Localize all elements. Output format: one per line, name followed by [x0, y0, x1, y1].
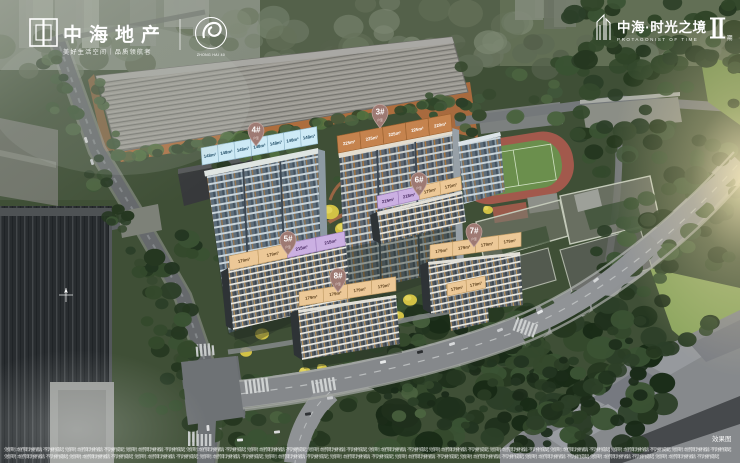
svg-text:ZHONG HAI 40: ZHONG HAI 40 — [197, 53, 225, 57]
svg-text:中海·时光之境: 中海·时光之境 — [617, 19, 707, 35]
svg-text:免责声明：本宣传资料为要约邀请，不作为要约或承诺；免责声明：: 免责声明：本宣传资料为要约邀请，不作为要约或承诺；免责声明：本宣传资料为要约邀请… — [4, 446, 734, 453]
svg-text:8#: 8# — [334, 271, 343, 280]
svg-text:6#: 6# — [415, 175, 424, 184]
svg-text:PROTAGONIST OF TIME: PROTAGONIST OF TIME — [617, 37, 698, 42]
svg-text:5#: 5# — [284, 234, 293, 243]
svg-text:美好生活空间｜品质领航者: 美好生活空间｜品质领航者 — [63, 48, 152, 56]
svg-text:户型: 户型 — [377, 118, 383, 122]
svg-text:3#: 3# — [376, 107, 385, 116]
svg-text:户型: 户型 — [335, 282, 341, 286]
svg-text:免责声明：本宣传资料为要约邀请，不作为要约或承诺；免责声明：: 免责声明：本宣传资料为要约邀请，不作为要约或承诺；免责声明：本宣传资料为要约邀请… — [4, 453, 722, 460]
svg-text:户型: 户型 — [416, 186, 422, 190]
svg-text:7#: 7# — [470, 226, 479, 235]
svg-text:户型: 户型 — [285, 245, 291, 249]
svg-text:中海地产: 中海地产 — [63, 23, 167, 46]
svg-text:期: 期 — [727, 35, 733, 42]
svg-text:效果图: 效果图 — [712, 434, 732, 443]
svg-text:户型: 户型 — [471, 237, 477, 241]
